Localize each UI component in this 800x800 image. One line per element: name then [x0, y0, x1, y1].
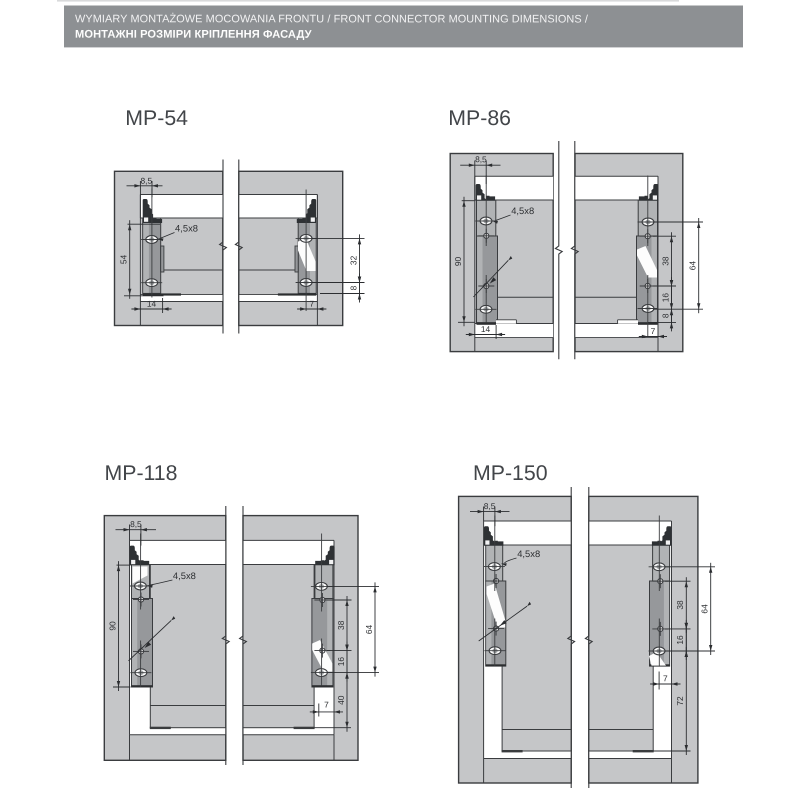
svg-text:4,5x8: 4,5x8 — [173, 570, 196, 581]
svg-text:90: 90 — [107, 621, 117, 631]
svg-text:8,5: 8,5 — [484, 501, 496, 511]
svg-text:54: 54 — [119, 255, 129, 265]
svg-text:МОНТАЖНІ РОЗМІРИ КРІПЛЕННЯ ФАС: МОНТАЖНІ РОЗМІРИ КРІПЛЕННЯ ФАСАДУ — [75, 29, 312, 41]
svg-text:7: 7 — [309, 299, 314, 309]
svg-text:8: 8 — [348, 285, 358, 290]
svg-text:38: 38 — [675, 600, 685, 610]
svg-text:14: 14 — [481, 324, 491, 334]
svg-text:8,5: 8,5 — [140, 176, 152, 186]
svg-text:16: 16 — [336, 657, 346, 667]
svg-text:14: 14 — [147, 299, 157, 309]
svg-text:7: 7 — [324, 699, 329, 709]
svg-text:72: 72 — [675, 696, 685, 706]
svg-text:MP-86: MP-86 — [448, 106, 511, 130]
svg-text:40: 40 — [336, 695, 346, 705]
svg-text:8,5: 8,5 — [130, 519, 142, 529]
svg-text:64: 64 — [688, 261, 698, 271]
svg-text:7: 7 — [651, 326, 656, 336]
svg-text:4,5x8: 4,5x8 — [511, 205, 534, 216]
svg-text:16: 16 — [675, 635, 685, 645]
svg-text:16: 16 — [660, 293, 670, 303]
svg-text:32: 32 — [348, 255, 358, 265]
svg-text:64: 64 — [700, 604, 710, 614]
svg-text:8,5: 8,5 — [475, 154, 487, 164]
svg-text:MP-150: MP-150 — [473, 461, 548, 485]
svg-text:90: 90 — [453, 257, 463, 267]
svg-text:38: 38 — [660, 256, 670, 266]
svg-text:MP-118: MP-118 — [104, 461, 177, 485]
svg-text:8: 8 — [660, 313, 670, 318]
svg-text:MP-54: MP-54 — [125, 106, 188, 130]
svg-text:4,5x8: 4,5x8 — [175, 222, 198, 233]
svg-text:7: 7 — [663, 673, 668, 683]
svg-text:38: 38 — [336, 620, 346, 630]
svg-text:WYMIARY MONTAŻOWE MOCOWANIA FR: WYMIARY MONTAŻOWE MOCOWANIA FRONTU / FRO… — [75, 12, 589, 25]
svg-text:4,5x8: 4,5x8 — [517, 548, 540, 559]
svg-text:64: 64 — [364, 625, 374, 635]
